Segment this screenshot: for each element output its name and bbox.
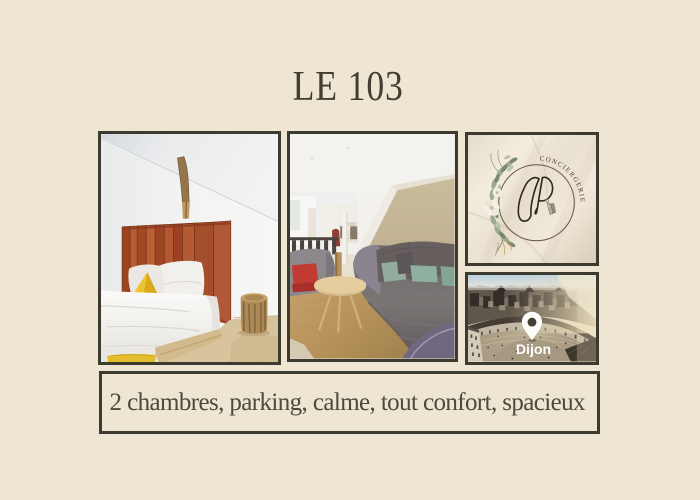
svg-text:Dijon: Dijon	[516, 341, 551, 357]
